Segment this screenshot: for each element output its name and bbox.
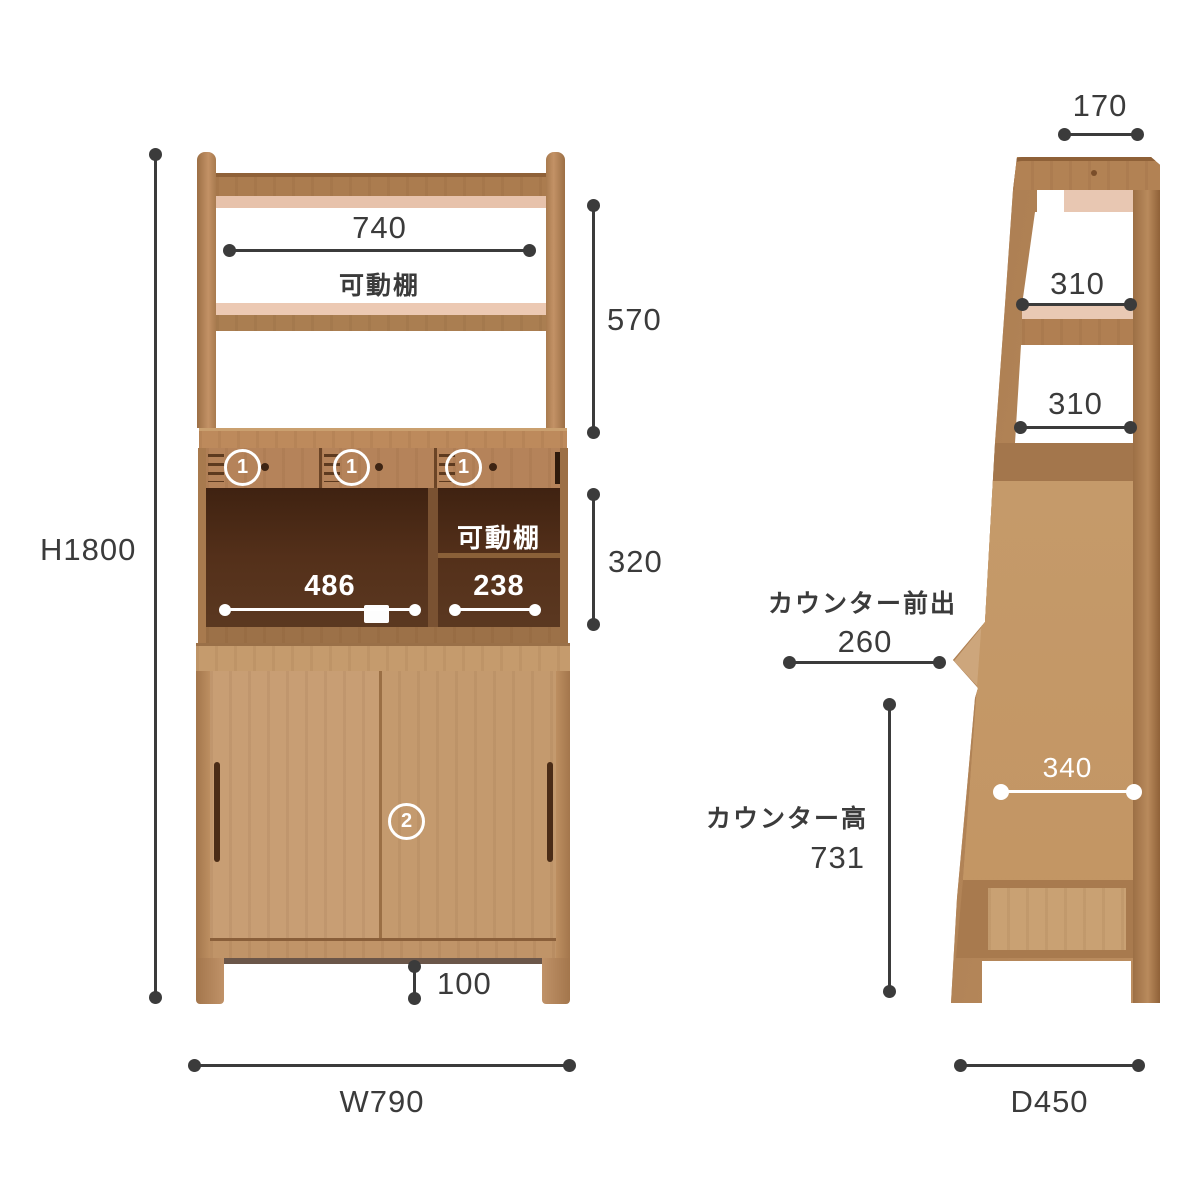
- upper-section-height-dimension-line: [592, 203, 595, 435]
- overall-width-dimension-line: [192, 1064, 572, 1067]
- overall-height-label: H1800: [40, 532, 136, 568]
- leg-height-dimension-line: [413, 964, 416, 1001]
- side-view: 340 170 310 310 カウンター前出 260 カウンター高 731 D…: [700, 0, 1200, 1200]
- front-top-beam: [216, 173, 546, 208]
- drawer-number-badge: 1: [333, 449, 370, 486]
- upper-shelf-depth-dimension-line: [1020, 303, 1133, 306]
- door-overlap-line: [379, 671, 382, 958]
- drawer-knob: [489, 463, 497, 471]
- counter-overhang-dimension-line: [787, 661, 942, 664]
- top-depth-value: 170: [1040, 88, 1160, 124]
- side-beam-peg: [1091, 170, 1097, 176]
- counter-section-height-dimension-line: [592, 492, 595, 627]
- right-niche-width-value: 238: [438, 570, 560, 603]
- drawer-knob: [261, 463, 269, 471]
- top-depth-dimension-line: [1062, 133, 1140, 136]
- front-right-post: [546, 152, 565, 428]
- counter-section-height-value: 320: [608, 544, 663, 580]
- left-niche-width-dimension-line: [222, 608, 418, 611]
- lower-shelf-depth-value: 310: [1018, 386, 1133, 422]
- front-movable-shelf: [216, 303, 546, 331]
- upper-shelf-depth-value: 310: [1020, 266, 1135, 302]
- top-shelf-width-value: 740: [222, 210, 537, 246]
- overall-width-label: W790: [192, 1084, 572, 1120]
- furniture-dimension-diagram: 1 1 1 可動棚 486 238 2: [0, 0, 1200, 1200]
- counter-height-label: カウンター高: [700, 799, 868, 835]
- drawer-joint-marks: [208, 454, 224, 482]
- drawer-knob: [375, 463, 383, 471]
- counter-overhang-value: 260: [770, 624, 960, 660]
- door-handle-left: [214, 762, 220, 862]
- middle-movable-shelf-label: 可動棚: [438, 518, 560, 555]
- front-open-niche: [206, 488, 560, 643]
- front-bottom-shadow: [210, 958, 556, 964]
- side-panel-depth-dimension-line: [996, 790, 1139, 793]
- side-back-post: [1133, 157, 1160, 1003]
- top-movable-shelf-label: 可動棚: [222, 266, 537, 302]
- overall-depth-label: D450: [958, 1084, 1141, 1120]
- counter-overhang-label: カウンター前出: [740, 584, 985, 620]
- right-niche-width-dimension-line: [452, 608, 538, 611]
- side-panel-depth-value: 340: [995, 752, 1140, 784]
- door-number-badge: 2: [388, 803, 425, 840]
- counter-height-value: 731: [700, 840, 865, 876]
- front-right-leg: [542, 958, 570, 1004]
- front-bottom-rail: [210, 938, 556, 958]
- drawer-number-badge: 1: [445, 449, 482, 486]
- side-top-beam: [1012, 157, 1160, 190]
- front-lower-right-frame: [556, 671, 570, 958]
- upper-section-height-value: 570: [607, 302, 662, 338]
- front-counter-top: [199, 428, 567, 448]
- top-shelf-width-dimension-line: [227, 249, 532, 252]
- front-left-post: [197, 152, 216, 428]
- front-mid-right-frame: [560, 448, 568, 643]
- front-lower-rail: [196, 643, 570, 671]
- front-view: 1 1 1 可動棚 486 238 2: [0, 0, 700, 1200]
- overall-height-dimension-line: [154, 152, 157, 1000]
- drawer-number-badge: 1: [224, 449, 261, 486]
- sliding-door-left: [210, 671, 382, 958]
- front-lower-left-frame: [196, 671, 210, 958]
- front-mid-left-frame: [198, 448, 206, 643]
- lower-shelf-depth-dimension-line: [1018, 426, 1133, 429]
- counter-height-dimension-line: [888, 702, 891, 994]
- door-handle-right: [547, 762, 553, 862]
- left-niche-width-value: 486: [240, 570, 420, 603]
- front-left-leg: [196, 958, 224, 1004]
- leg-height-value: 100: [437, 966, 492, 1002]
- overall-depth-dimension-line: [958, 1064, 1141, 1067]
